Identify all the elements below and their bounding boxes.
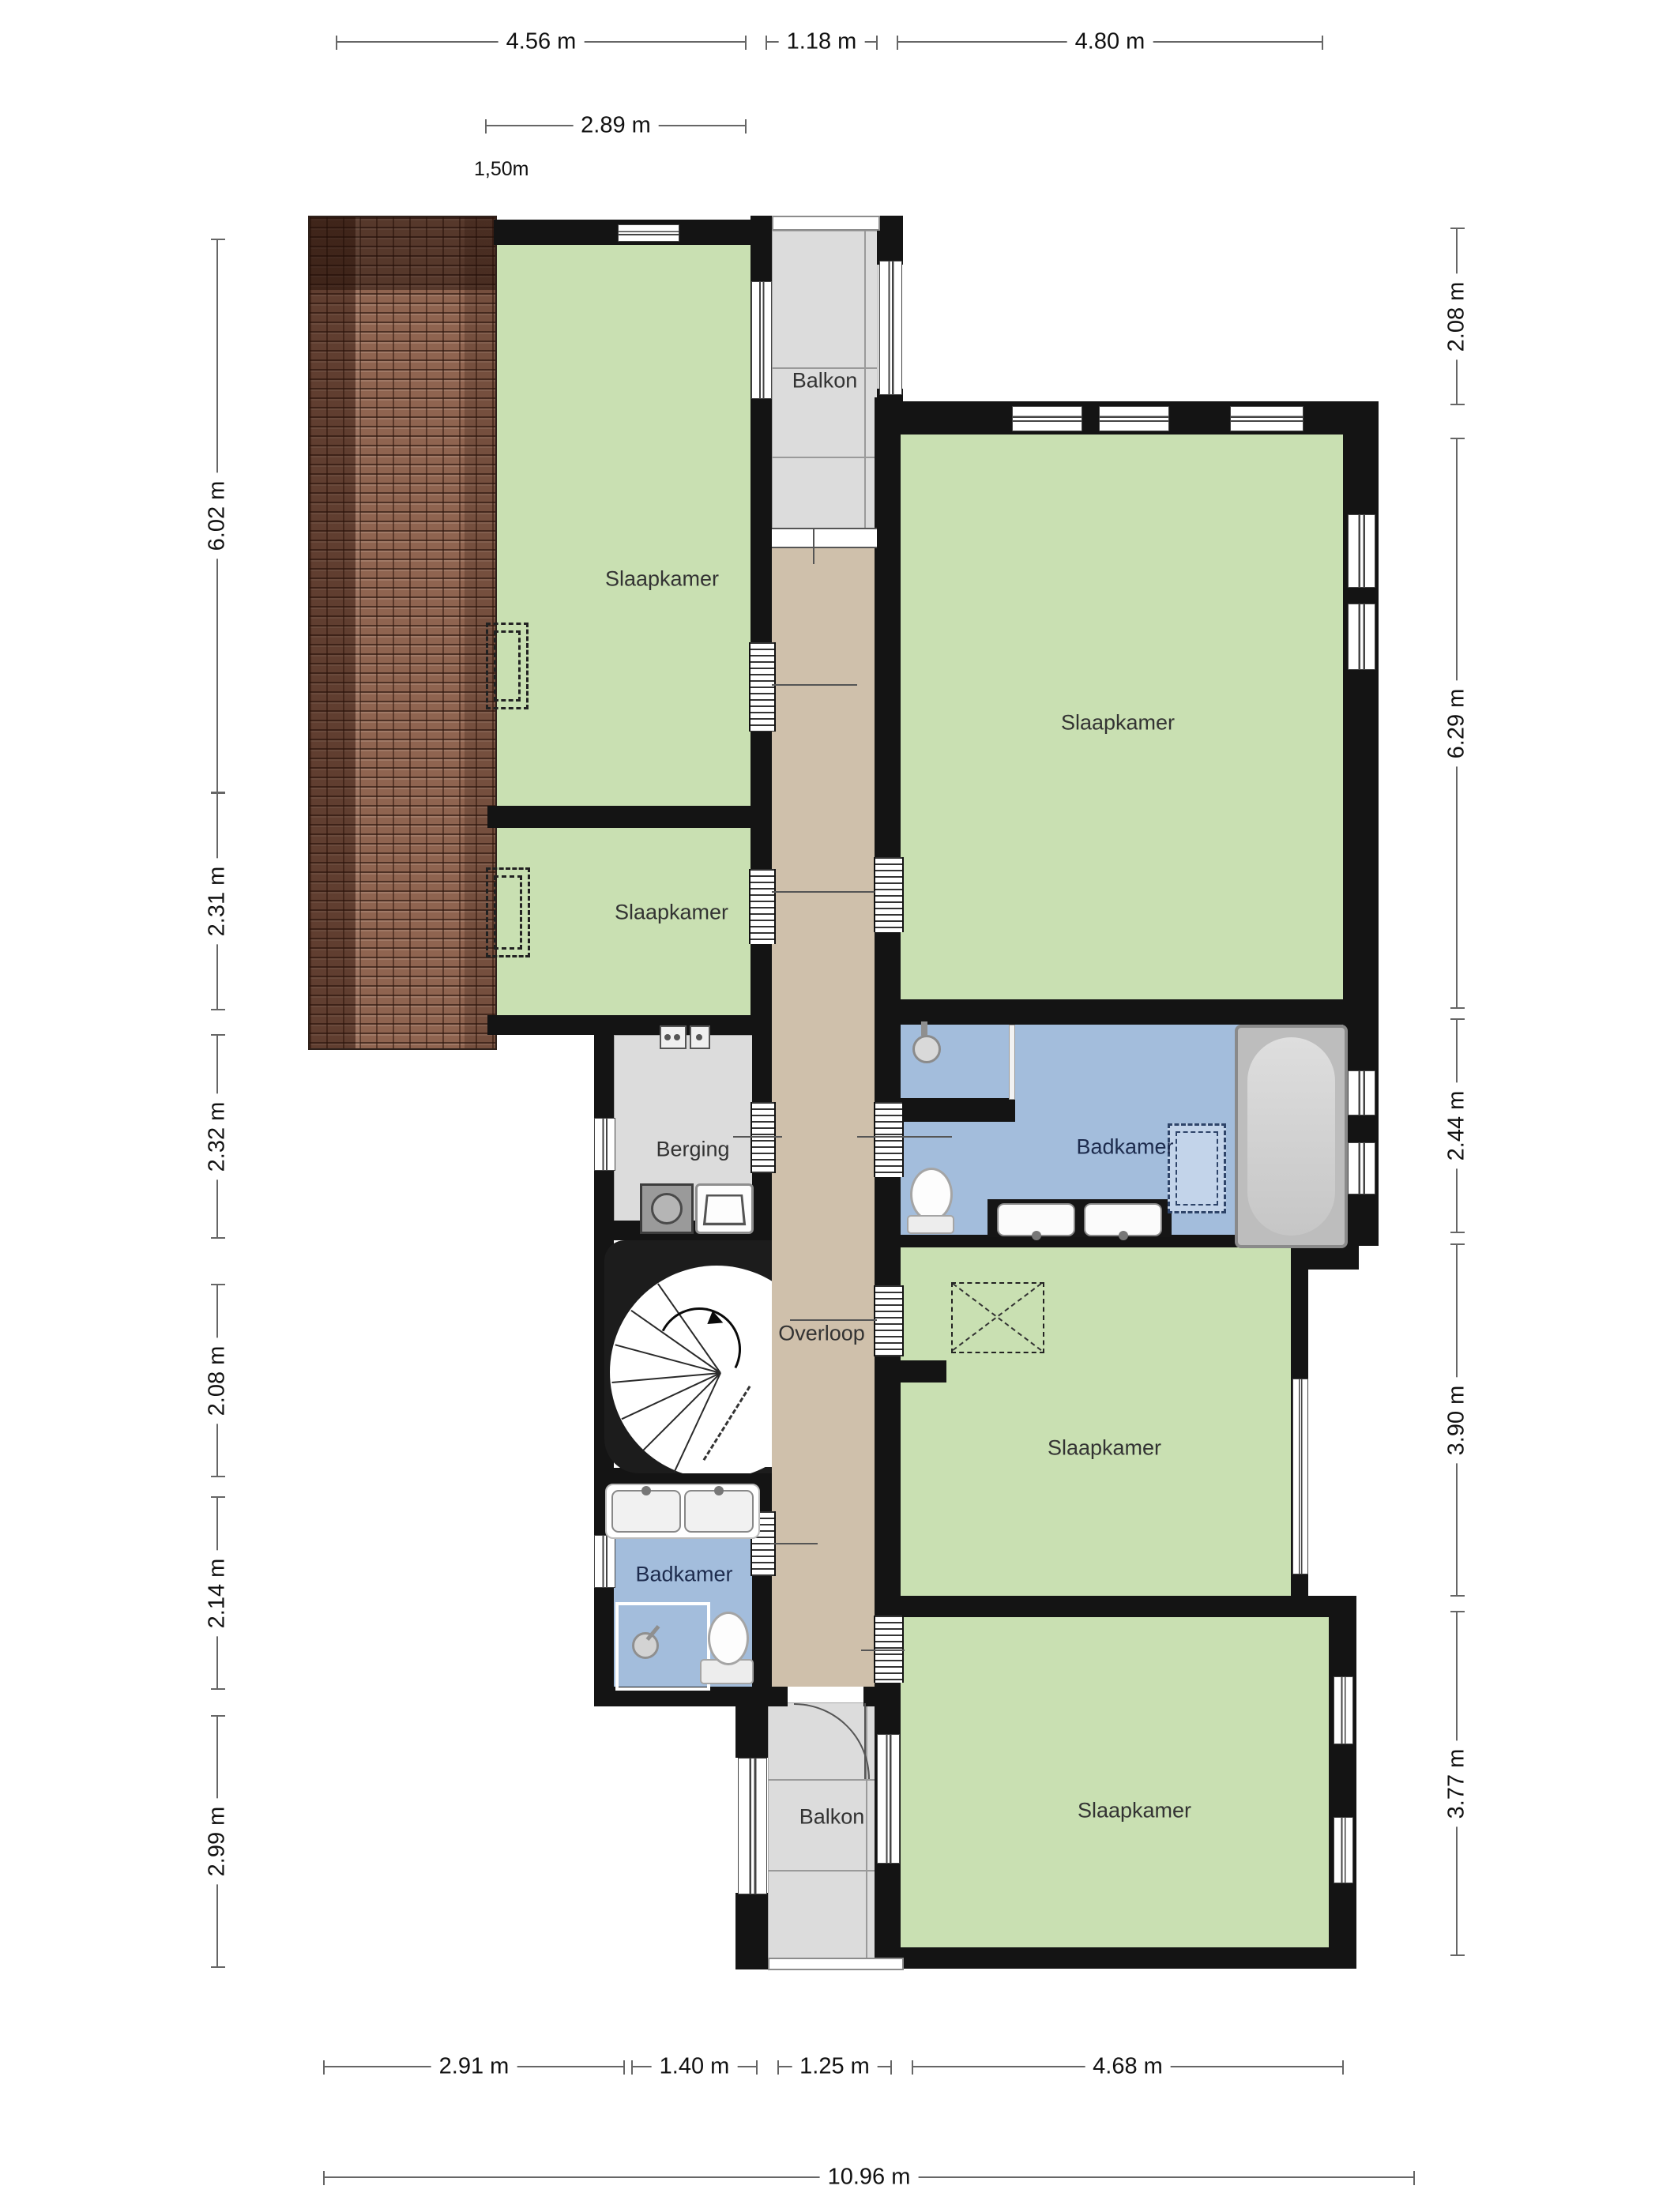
window <box>618 224 679 242</box>
window <box>751 281 772 399</box>
floor-plan: Slaapkamer Balkon Slaapkamer Slaapkamer … <box>0 0 1659 2212</box>
dimension-label: 6.29 m <box>1444 680 1470 766</box>
dimension-label: 4.68 m <box>1085 2054 1171 2080</box>
wall <box>487 806 772 828</box>
shower-dashed-outline <box>1168 1123 1226 1213</box>
room-label-bedroom-mid-left: Slaapkamer <box>615 901 728 925</box>
sink-icon <box>997 1203 1075 1236</box>
dimension-label: 10.96 m <box>820 2165 919 2191</box>
wall <box>901 1596 1356 1617</box>
door-leaf <box>864 1703 866 1779</box>
wall <box>901 999 1343 1025</box>
dimension-bottom-1: 2.91 m <box>324 2066 624 2067</box>
shower-enclosure <box>615 1602 710 1691</box>
dimension-label: 2.99 m <box>205 1799 231 1885</box>
room-label-balcony-bottom: Balkon <box>799 1805 865 1830</box>
window <box>1348 604 1375 670</box>
dimension-label: 2.89 m <box>573 113 659 139</box>
dimension-label: 2.32 m <box>205 1093 231 1179</box>
room-label-bedroom-bottom: Slaapkamer <box>1078 1799 1191 1823</box>
bathtub-basin <box>1247 1037 1335 1236</box>
fixture-dot <box>674 1034 680 1040</box>
window <box>877 1734 900 1864</box>
dimension-label: 2.08 m <box>1444 273 1470 359</box>
wall-fixture-icon <box>690 1025 710 1049</box>
balcony-divider <box>864 231 866 528</box>
washing-machine-icon <box>640 1183 694 1234</box>
dimension-left-3: 2.32 m <box>216 1035 218 1238</box>
bathtub-icon <box>1235 1025 1348 1248</box>
faucet-icon <box>641 1486 651 1495</box>
skylight-dashed <box>951 1282 1044 1353</box>
room-label-bathroom-right: Badkamer <box>1076 1135 1173 1160</box>
door-opening <box>750 1102 776 1173</box>
corner-sink-icon <box>912 1035 941 1063</box>
toilet-icon <box>910 1168 953 1221</box>
window <box>1334 1817 1353 1883</box>
roof-tiles <box>308 216 497 1050</box>
dimension-label: 3.77 m <box>1444 1740 1470 1826</box>
dormer-outline-inner <box>494 875 522 950</box>
dimension-label: 2.14 m <box>205 1550 231 1636</box>
room-bedroom-top-left <box>494 245 750 807</box>
dimension-right-1: 2.08 m <box>1456 228 1458 404</box>
balcony-railing <box>772 216 880 231</box>
room-label-hallway: Overloop <box>778 1322 865 1346</box>
window <box>1230 406 1303 431</box>
door-line <box>770 1543 818 1544</box>
toilet-icon <box>708 1612 749 1665</box>
wall <box>875 1947 1356 1969</box>
dimension-left-4: 2.08 m <box>216 1285 218 1477</box>
shower-head-icon <box>632 1632 659 1659</box>
dimension-label: 6.02 m <box>205 473 231 559</box>
dimension-top-2: 1.18 m <box>766 41 877 43</box>
wall <box>877 216 903 265</box>
door-opening <box>874 1102 904 1177</box>
dimension-bottom-3: 1.25 m <box>778 2066 891 2067</box>
dimension-left-1: 6.02 m <box>216 239 218 792</box>
room-label-bedroom-top-right: Slaapkamer <box>1061 711 1175 735</box>
dimension-label: 1.40 m <box>652 2054 738 2080</box>
balcony-railing <box>768 1958 904 1970</box>
washer-drum <box>651 1193 683 1224</box>
dimension-label: 3.90 m <box>1444 1377 1470 1463</box>
wall <box>487 1015 772 1035</box>
balcony-door <box>772 528 877 548</box>
window <box>1099 406 1169 431</box>
dimension-label: 2.44 m <box>1444 1083 1470 1169</box>
faucet-icon <box>714 1486 724 1495</box>
fixture-dot <box>696 1034 702 1040</box>
room-bedroom-bottom <box>901 1617 1329 1949</box>
sink-icon <box>611 1490 681 1533</box>
dimension-right-2: 6.29 m <box>1456 438 1458 1008</box>
dimension-left-6: 2.99 m <box>216 1716 218 1967</box>
window <box>1334 1676 1353 1744</box>
balcony-divider <box>772 457 877 458</box>
dimension-label: 2.08 m <box>205 1337 231 1424</box>
dimension-top-3: 4.80 m <box>897 41 1322 43</box>
wall-fixture-icon <box>660 1025 687 1049</box>
faucet-icon <box>1119 1231 1128 1240</box>
door-opening <box>874 857 904 932</box>
dimension-right-5: 3.77 m <box>1456 1612 1458 1955</box>
sink-icon <box>1084 1203 1162 1236</box>
wall <box>1329 1596 1356 1969</box>
dimension-top-1: 4.56 m <box>337 41 746 43</box>
balcony-divider <box>768 1870 875 1872</box>
dimension-right-3: 2.44 m <box>1456 1019 1458 1232</box>
dimension-label: 2.31 m <box>205 859 231 945</box>
glass-partition <box>1009 1025 1015 1100</box>
sink-icon <box>684 1490 754 1533</box>
dormer-outline-inner <box>494 630 521 702</box>
door-opening <box>749 642 776 732</box>
door-line <box>857 1136 952 1138</box>
door-opening <box>749 869 776 944</box>
fixture-dot <box>664 1034 671 1040</box>
laundry-sink-basin <box>703 1194 746 1225</box>
shower-dashed-inner <box>1176 1131 1218 1206</box>
room-label-bedroom-mid-right: Slaapkamer <box>1048 1436 1161 1461</box>
wall <box>901 1360 946 1382</box>
room-label-bedroom-top-left: Slaapkamer <box>605 567 719 592</box>
laundry-sink-icon <box>695 1183 754 1234</box>
window <box>1348 1070 1375 1115</box>
window <box>1012 406 1082 431</box>
window <box>594 1118 615 1171</box>
dimension-right-4: 3.90 m <box>1456 1244 1458 1596</box>
window <box>1348 514 1375 588</box>
dimension-bottom-4: 4.68 m <box>912 2066 1343 2067</box>
dimension-annotation: 1,50m <box>474 158 529 181</box>
dimension-label: 1.25 m <box>792 2054 878 2080</box>
door-line <box>772 891 875 893</box>
wall <box>735 1893 768 1969</box>
window <box>594 1535 615 1588</box>
door-line <box>733 1136 782 1138</box>
wall <box>901 1098 1015 1122</box>
door-leaf <box>813 528 814 564</box>
balcony-divider <box>866 1702 867 1958</box>
door-line <box>772 684 857 686</box>
dimension-left-2: 2.31 m <box>216 793 218 1010</box>
dimension-left-5: 2.14 m <box>216 1497 218 1689</box>
dimension-label: 2.91 m <box>431 2054 517 2080</box>
room-label-balcony-top: Balkon <box>792 369 858 393</box>
door-line <box>861 1650 905 1651</box>
dimension-top-secondary: 2.89 m <box>486 125 746 126</box>
window <box>1292 1379 1308 1574</box>
faucet-icon <box>1032 1231 1041 1240</box>
dimension-bottom-total: 10.96 m <box>324 2176 1414 2178</box>
dormer-outline <box>486 867 530 957</box>
dimension-label: 4.80 m <box>1067 29 1153 55</box>
window <box>879 261 902 395</box>
room-label-bathroom-left: Badkamer <box>635 1563 732 1587</box>
faucet-icon <box>921 1021 927 1036</box>
room-hallway <box>772 545 875 1687</box>
dormer-outline <box>486 623 529 709</box>
room-label-storage: Berging <box>656 1138 729 1162</box>
dimension-label: 4.56 m <box>498 29 585 55</box>
door-opening <box>874 1285 904 1356</box>
dimension-bottom-2: 1.40 m <box>632 2066 757 2067</box>
toilet-tank-icon <box>907 1215 954 1234</box>
dimension-label: 1.18 m <box>779 29 865 55</box>
window <box>1348 1142 1375 1194</box>
